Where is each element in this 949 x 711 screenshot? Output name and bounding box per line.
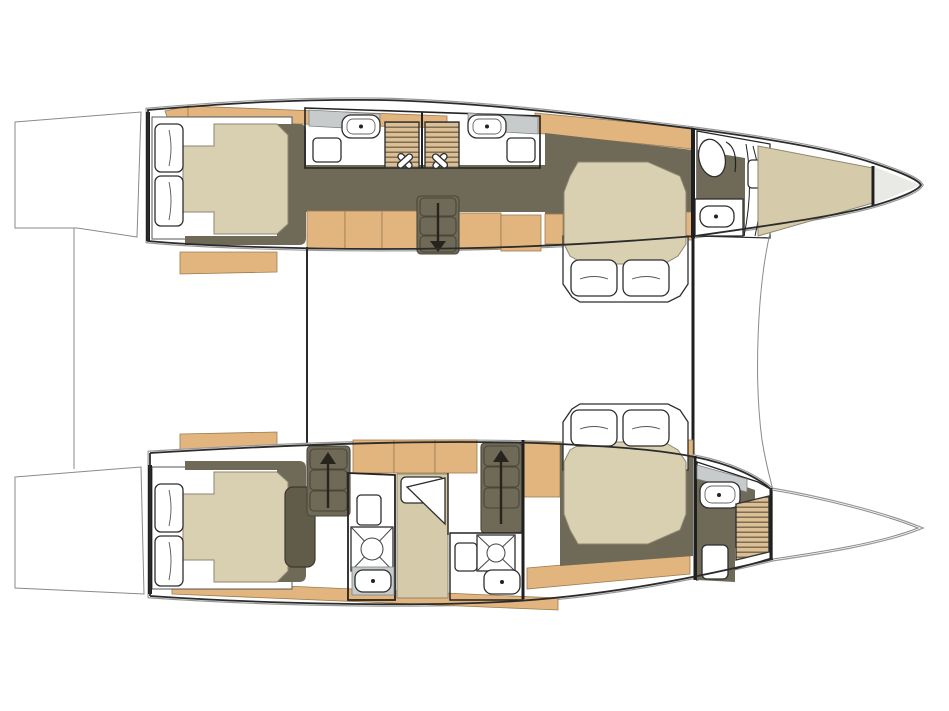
storage-cabinet (394, 440, 435, 473)
sink-faucet-dot-icon (359, 125, 363, 129)
shower-drain-icon (361, 538, 383, 560)
sink-faucet-dot-icon (485, 125, 489, 129)
storage-cabinet (523, 442, 560, 497)
starboard-aft-cabin (148, 461, 315, 594)
storage-cabinet (353, 440, 394, 473)
shower-louver-door (736, 496, 769, 560)
storage-cabinet (435, 440, 477, 473)
pillow (571, 410, 617, 446)
storage-cabinet (345, 211, 382, 249)
bedside-locker (545, 214, 563, 244)
storage-cabinet (307, 211, 345, 249)
toilet (357, 495, 381, 525)
port-davit-step (180, 252, 277, 274)
port-forward-cabin (545, 133, 693, 302)
pillow (571, 260, 617, 296)
stairs-up-mid (481, 443, 522, 533)
stern-platform-port (15, 112, 141, 237)
coachroof-windshield-curve (758, 233, 773, 490)
sink-faucet-dot-icon (717, 493, 721, 497)
island-bed-mattress (564, 162, 686, 264)
single-berth-cabin (397, 473, 448, 598)
floor-plan-canvas (0, 0, 949, 711)
shower-drain-icon (487, 544, 505, 562)
catamaran-floor-plan (0, 0, 949, 711)
sink (468, 115, 506, 138)
toilet (455, 543, 477, 571)
sink (342, 115, 380, 138)
stairs-up-aft (307, 446, 350, 516)
stern-platform-starboard (15, 467, 144, 594)
toilet (507, 138, 535, 162)
forward-beam-bulkhead (691, 128, 695, 238)
shower-tray (477, 535, 515, 571)
sink-faucet-dot-icon (500, 580, 504, 584)
pillow (623, 260, 669, 296)
storage-cabinet (459, 213, 501, 249)
toilet (313, 138, 341, 162)
port-aft-cabin (146, 112, 306, 245)
pillow (623, 410, 669, 446)
sink-faucet-dot-icon (714, 215, 718, 219)
storage-cabinet (382, 211, 417, 249)
stairs-down (417, 196, 459, 254)
stern-platforms (15, 112, 144, 594)
starboard-forward-cabin (560, 404, 693, 566)
sink-faucet-dot-icon (371, 579, 375, 583)
shower-tray (351, 527, 393, 571)
island-bed-mattress (564, 442, 686, 544)
